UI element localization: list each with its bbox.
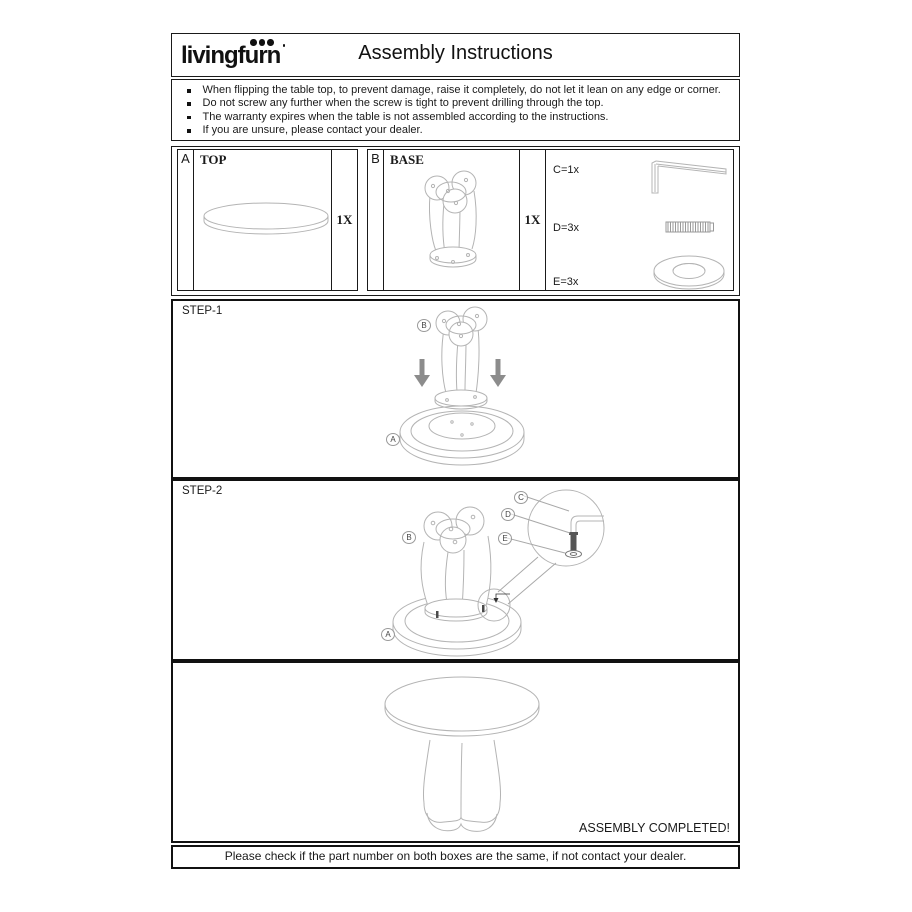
screw-icon	[664, 217, 716, 237]
washer-icon	[651, 252, 729, 292]
step2-label-c: C	[514, 491, 528, 504]
bullet-icon	[187, 102, 191, 106]
bullet-icon	[187, 116, 191, 120]
step2-section: STEP-2	[171, 479, 740, 661]
part-a-box: A TOP 1X	[177, 149, 358, 291]
hardware-box: C=1x D=3x E=3x	[545, 149, 734, 291]
footer-note-box: Please check if the part number on both …	[171, 845, 740, 869]
footer-note-text: Please check if the part number on both …	[225, 849, 687, 863]
assembly-instructions-page: livingfurn Assembly Instructions When fl…	[0, 0, 912, 912]
warning-item: If you are unsure, please contact your d…	[185, 124, 731, 137]
warning-item: The warranty expires when the table is n…	[185, 111, 731, 124]
allen-key-icon	[642, 155, 732, 197]
step2-label-e: E	[498, 532, 512, 545]
part-b-qty: 1X	[519, 150, 545, 290]
part-b-letter: B	[368, 150, 384, 290]
hardware-e-label: E=3x	[553, 276, 578, 288]
bullet-icon	[187, 89, 191, 93]
down-arrow-icon	[490, 359, 506, 387]
warning-box: When flipping the table top, to prevent …	[171, 79, 740, 141]
hardware-d-label: D=3x	[553, 222, 579, 234]
step1-illustration	[362, 303, 562, 477]
step1-section: STEP-1	[171, 299, 740, 479]
step1-label-a: A	[386, 433, 400, 446]
assembly-completed-text: ASSEMBLY COMPLETED!	[579, 821, 730, 835]
step2-label-b: B	[402, 531, 416, 544]
insert-arrow-icon	[494, 594, 511, 603]
part-a-letter: A	[178, 150, 194, 290]
completed-table-illustration	[372, 671, 552, 841]
page-title: Assembly Instructions	[172, 42, 739, 65]
parts-list: A TOP 1X B BASE	[171, 146, 740, 296]
warning-text: If you are unsure, please contact your d…	[203, 124, 423, 137]
down-arrow-icon	[414, 359, 430, 387]
screw-icon	[569, 532, 578, 551]
warning-item: Do not screw any further when the screw …	[185, 97, 731, 110]
part-a-area: TOP	[194, 150, 331, 290]
warning-text: The warranty expires when the table is n…	[203, 111, 609, 124]
washer-icon	[566, 551, 582, 558]
warning-text: When flipping the table top, to prevent …	[203, 84, 721, 97]
final-section: ASSEMBLY COMPLETED!	[171, 661, 740, 843]
step2-title: STEP-2	[182, 485, 222, 497]
table-base-illustration	[392, 163, 512, 278]
part-b-area: BASE	[384, 150, 519, 290]
step1-title: STEP-1	[182, 305, 222, 317]
warning-text: Do not screw any further when the screw …	[203, 97, 604, 110]
header: livingfurn Assembly Instructions	[171, 33, 740, 77]
bullet-icon	[187, 129, 191, 133]
step2-label-a: A	[381, 628, 395, 641]
part-b-box: B BASE	[367, 149, 546, 291]
hardware-c-label: C=1x	[553, 164, 579, 176]
step1-label-b: B	[417, 319, 431, 332]
warning-item: When flipping the table top, to prevent …	[185, 84, 731, 97]
step2-label-d: D	[501, 508, 515, 521]
table-top-illustration	[196, 166, 336, 276]
